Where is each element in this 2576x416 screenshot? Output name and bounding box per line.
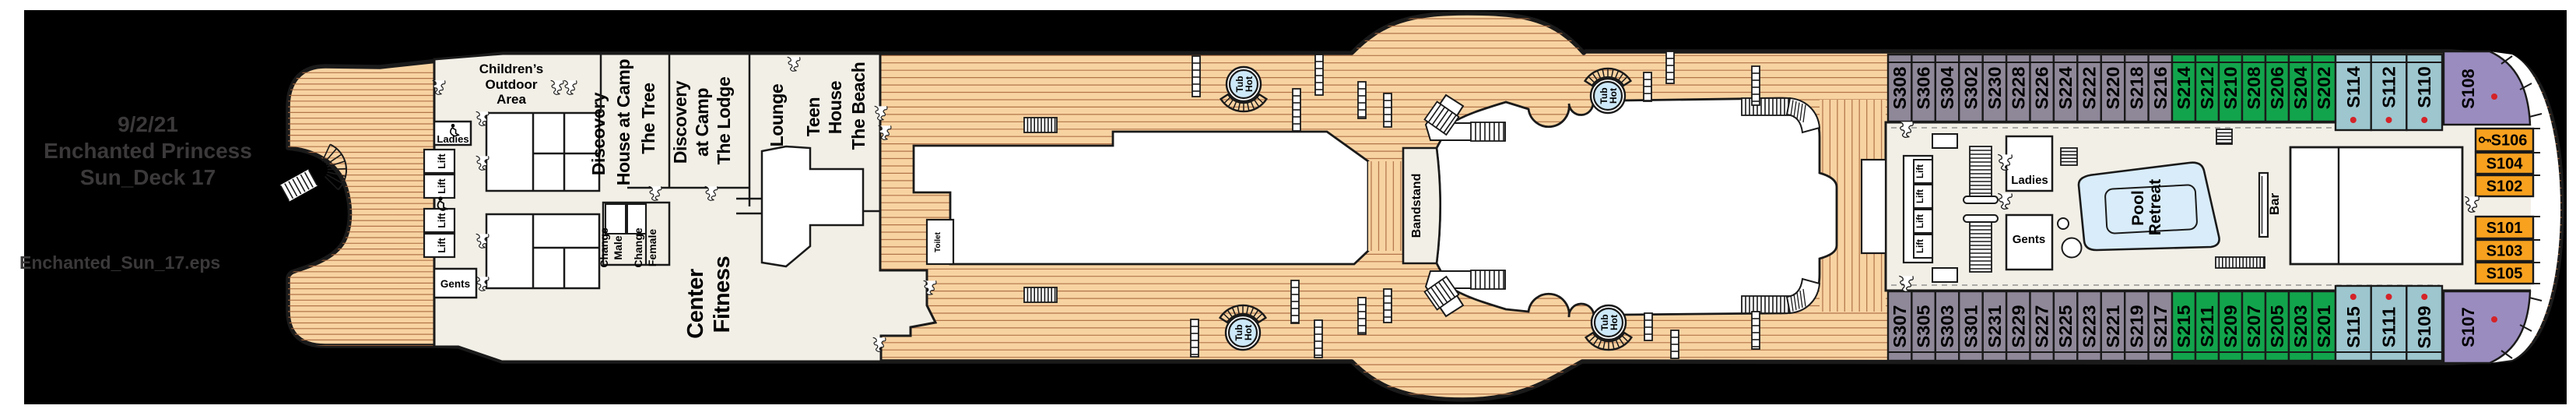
svg-text:S108: S108: [2458, 69, 2478, 108]
svg-text:The Tree: The Tree: [638, 83, 658, 153]
svg-text:Area: Area: [497, 92, 526, 107]
svg-text:Lift: Lift: [1916, 239, 1925, 253]
svg-text:Hot: Hot: [1609, 315, 1620, 330]
svg-text:Ladies: Ladies: [2011, 174, 2048, 187]
svg-text:S209: S209: [2220, 305, 2241, 348]
svg-text:S306: S306: [1914, 67, 1934, 110]
svg-text:Lift: Lift: [437, 178, 447, 193]
svg-text:Lift: Lift: [437, 212, 447, 227]
svg-text:S221: S221: [2103, 305, 2123, 348]
svg-text:Lift: Lift: [437, 153, 447, 168]
svg-text:S229: S229: [2008, 305, 2028, 348]
svg-text:S301: S301: [1961, 305, 1981, 348]
svg-text:Enchanted_Sun_17.eps: Enchanted_Sun_17.eps: [19, 252, 220, 273]
svg-text:Fitness: Fitness: [710, 256, 735, 333]
svg-text:Hot: Hot: [1243, 325, 1254, 340]
svg-text:S111: S111: [2379, 307, 2399, 347]
svg-text:S210: S210: [2220, 67, 2241, 110]
svg-text:S106: S106: [2491, 132, 2528, 150]
svg-text:The Beach: The Beach: [848, 62, 869, 150]
svg-text:S115: S115: [2343, 306, 2364, 348]
svg-text:Female: Female: [646, 229, 658, 266]
svg-text:Lift: Lift: [1916, 214, 1925, 228]
svg-text:S308: S308: [1890, 67, 1910, 110]
svg-text:Children’s: Children’s: [479, 62, 544, 76]
svg-text:S204: S204: [2290, 67, 2311, 110]
svg-text:S302: S302: [1961, 67, 1981, 110]
svg-text:S215: S215: [2174, 305, 2194, 348]
svg-text:S305: S305: [1914, 305, 1934, 348]
svg-text:S207: S207: [2244, 305, 2264, 348]
svg-text:Discovery: Discovery: [588, 92, 609, 175]
svg-text:Lounge: Lounge: [767, 84, 787, 147]
svg-text:S219: S219: [2126, 305, 2146, 348]
svg-text:Outdoor: Outdoor: [485, 77, 537, 92]
svg-text:S206: S206: [2267, 67, 2287, 110]
svg-text:S222: S222: [2079, 67, 2100, 110]
svg-text:Retreat: Retreat: [2146, 179, 2164, 235]
svg-text:9/2/21: 9/2/21: [118, 112, 178, 136]
svg-text:S218: S218: [2126, 67, 2146, 110]
svg-text:S220: S220: [2103, 67, 2123, 110]
svg-text:Discovery: Discovery: [670, 80, 690, 164]
svg-text:S101: S101: [2487, 220, 2523, 237]
svg-text:Gents: Gents: [440, 278, 470, 290]
svg-text:S307: S307: [1890, 305, 1910, 348]
svg-text:Teen: Teen: [803, 97, 823, 136]
svg-text:Lift: Lift: [1916, 164, 1925, 178]
svg-text:S205: S205: [2267, 305, 2287, 348]
svg-text:The Lodge: The Lodge: [714, 77, 734, 165]
svg-text:House at Camp: House at Camp: [613, 59, 633, 186]
svg-text:S112: S112: [2379, 66, 2399, 108]
svg-text:Change: Change: [632, 227, 644, 268]
svg-text:S107: S107: [2458, 307, 2478, 347]
svg-text:S227: S227: [2032, 305, 2052, 348]
svg-text:S104: S104: [2487, 156, 2524, 173]
svg-text:S208: S208: [2244, 67, 2264, 110]
svg-text:House: House: [825, 81, 845, 134]
svg-text:S225: S225: [2055, 305, 2076, 348]
svg-text:S224: S224: [2055, 67, 2076, 110]
svg-text:S114: S114: [2343, 66, 2364, 108]
svg-text:Hot: Hot: [1244, 76, 1255, 92]
svg-text:Bandstand: Bandstand: [1410, 174, 1423, 238]
svg-text:Change: Change: [598, 227, 610, 268]
svg-text:Hot: Hot: [1608, 88, 1619, 104]
svg-text:S203: S203: [2290, 305, 2311, 348]
svg-text:S211: S211: [2197, 305, 2217, 347]
svg-text:S102: S102: [2487, 178, 2523, 196]
svg-text:S202: S202: [2314, 67, 2334, 110]
svg-text:Male: Male: [612, 235, 624, 259]
svg-text:S304: S304: [1937, 67, 1957, 110]
svg-text:Pool: Pool: [2129, 190, 2147, 226]
svg-text:S103: S103: [2487, 243, 2523, 260]
svg-text:S110: S110: [2414, 66, 2434, 108]
svg-text:S214: S214: [2174, 67, 2194, 110]
svg-text:S230: S230: [1985, 67, 2005, 110]
svg-text:Toilet: Toilet: [934, 231, 942, 252]
svg-text:S231: S231: [1985, 305, 2005, 348]
svg-text:Bar: Bar: [2267, 192, 2282, 215]
svg-text:S228: S228: [2008, 67, 2028, 110]
svg-text:Lift: Lift: [1916, 189, 1925, 203]
svg-text:Lift: Lift: [437, 237, 447, 252]
svg-text:S109: S109: [2414, 306, 2434, 349]
svg-text:Center: Center: [683, 269, 708, 339]
svg-text:S216: S216: [2150, 67, 2171, 110]
svg-text:Sun_Deck 17: Sun_Deck 17: [80, 165, 216, 189]
svg-text:S201: S201: [2314, 305, 2334, 348]
svg-text:S217: S217: [2150, 305, 2171, 348]
svg-text:S226: S226: [2032, 67, 2052, 110]
svg-text:S105: S105: [2487, 266, 2523, 283]
svg-text:S223: S223: [2079, 305, 2100, 348]
svg-text:Enchanted Princess: Enchanted Princess: [44, 139, 252, 163]
svg-text:S303: S303: [1937, 305, 1957, 348]
svg-text:at Camp: at Camp: [692, 88, 712, 157]
svg-text:Gents: Gents: [2013, 233, 2046, 246]
svg-text:S212: S212: [2197, 67, 2217, 110]
